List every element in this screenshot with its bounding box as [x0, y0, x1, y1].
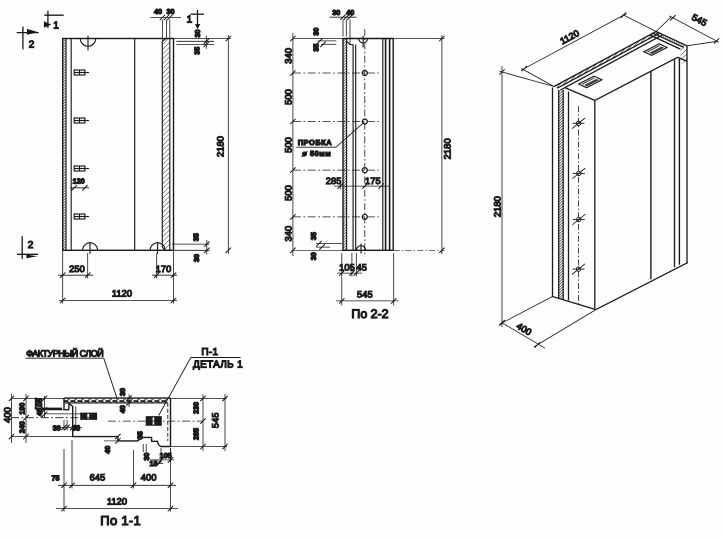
svg-text:240: 240 [18, 421, 27, 433]
svg-text:ДЕТАЛЬ 1: ДЕТАЛЬ 1 [193, 360, 243, 371]
svg-text:40: 40 [103, 446, 112, 454]
svg-text:40: 40 [118, 405, 127, 413]
svg-text:2: 2 [28, 240, 34, 251]
svg-text:40: 40 [346, 8, 354, 17]
svg-text:2180: 2180 [442, 138, 452, 159]
svg-text:35: 35 [311, 44, 320, 52]
svg-text:30: 30 [309, 252, 318, 260]
svg-text:35: 35 [136, 431, 145, 439]
svg-text:ø 50мм: ø 50мм [302, 149, 331, 158]
svg-text:ФАКТУРНЫЙ СЛОЙ: ФАКТУРНЫЙ СЛОЙ [26, 347, 103, 358]
svg-text:2: 2 [29, 40, 35, 51]
svg-text:75: 75 [52, 474, 60, 483]
svg-text:35: 35 [309, 232, 318, 240]
svg-text:500: 500 [283, 89, 293, 105]
svg-text:340: 340 [283, 48, 293, 64]
svg-text:По 2-2: По 2-2 [351, 307, 388, 321]
svg-text:120: 120 [73, 177, 85, 186]
svg-text:545: 545 [357, 290, 373, 300]
svg-text:30: 30 [332, 8, 340, 17]
svg-text:400: 400 [3, 407, 13, 423]
svg-text:2180: 2180 [492, 196, 502, 217]
svg-text:340: 340 [283, 226, 293, 242]
svg-text:1120: 1120 [112, 289, 132, 299]
svg-text:1: 1 [187, 15, 193, 26]
svg-text:30: 30 [118, 388, 127, 396]
svg-text:500: 500 [283, 137, 293, 153]
svg-text:30: 30 [53, 423, 61, 432]
svg-text:175: 175 [365, 176, 381, 186]
svg-text:645: 645 [90, 473, 106, 483]
svg-text:170: 170 [156, 264, 172, 274]
svg-text:П-1: П-1 [201, 347, 218, 358]
svg-text:1: 1 [53, 20, 59, 31]
svg-text:1120: 1120 [107, 497, 127, 507]
svg-text:30: 30 [167, 7, 175, 16]
svg-text:35: 35 [72, 423, 80, 432]
svg-text:45: 45 [357, 262, 368, 272]
svg-text:15: 15 [150, 459, 158, 468]
svg-text:285: 285 [192, 428, 201, 440]
svg-text:400: 400 [141, 473, 157, 483]
svg-text:545: 545 [211, 412, 221, 428]
svg-text:ПРОБКА: ПРОБКА [298, 138, 332, 147]
svg-text:105: 105 [160, 451, 172, 460]
svg-text:35: 35 [193, 47, 202, 55]
svg-text:По 1-1: По 1-1 [100, 513, 141, 528]
svg-text:190: 190 [18, 403, 27, 415]
svg-text:45: 45 [35, 408, 44, 416]
svg-text:500: 500 [283, 185, 293, 201]
svg-text:250: 250 [69, 264, 85, 274]
svg-text:230: 230 [192, 402, 201, 414]
svg-text:40: 40 [154, 7, 162, 16]
svg-text:2180: 2180 [216, 136, 226, 157]
svg-text:30: 30 [193, 30, 202, 38]
svg-text:30: 30 [192, 254, 201, 262]
svg-text:35: 35 [192, 233, 201, 241]
svg-text:30: 30 [311, 28, 320, 36]
svg-text:285: 285 [326, 176, 342, 186]
